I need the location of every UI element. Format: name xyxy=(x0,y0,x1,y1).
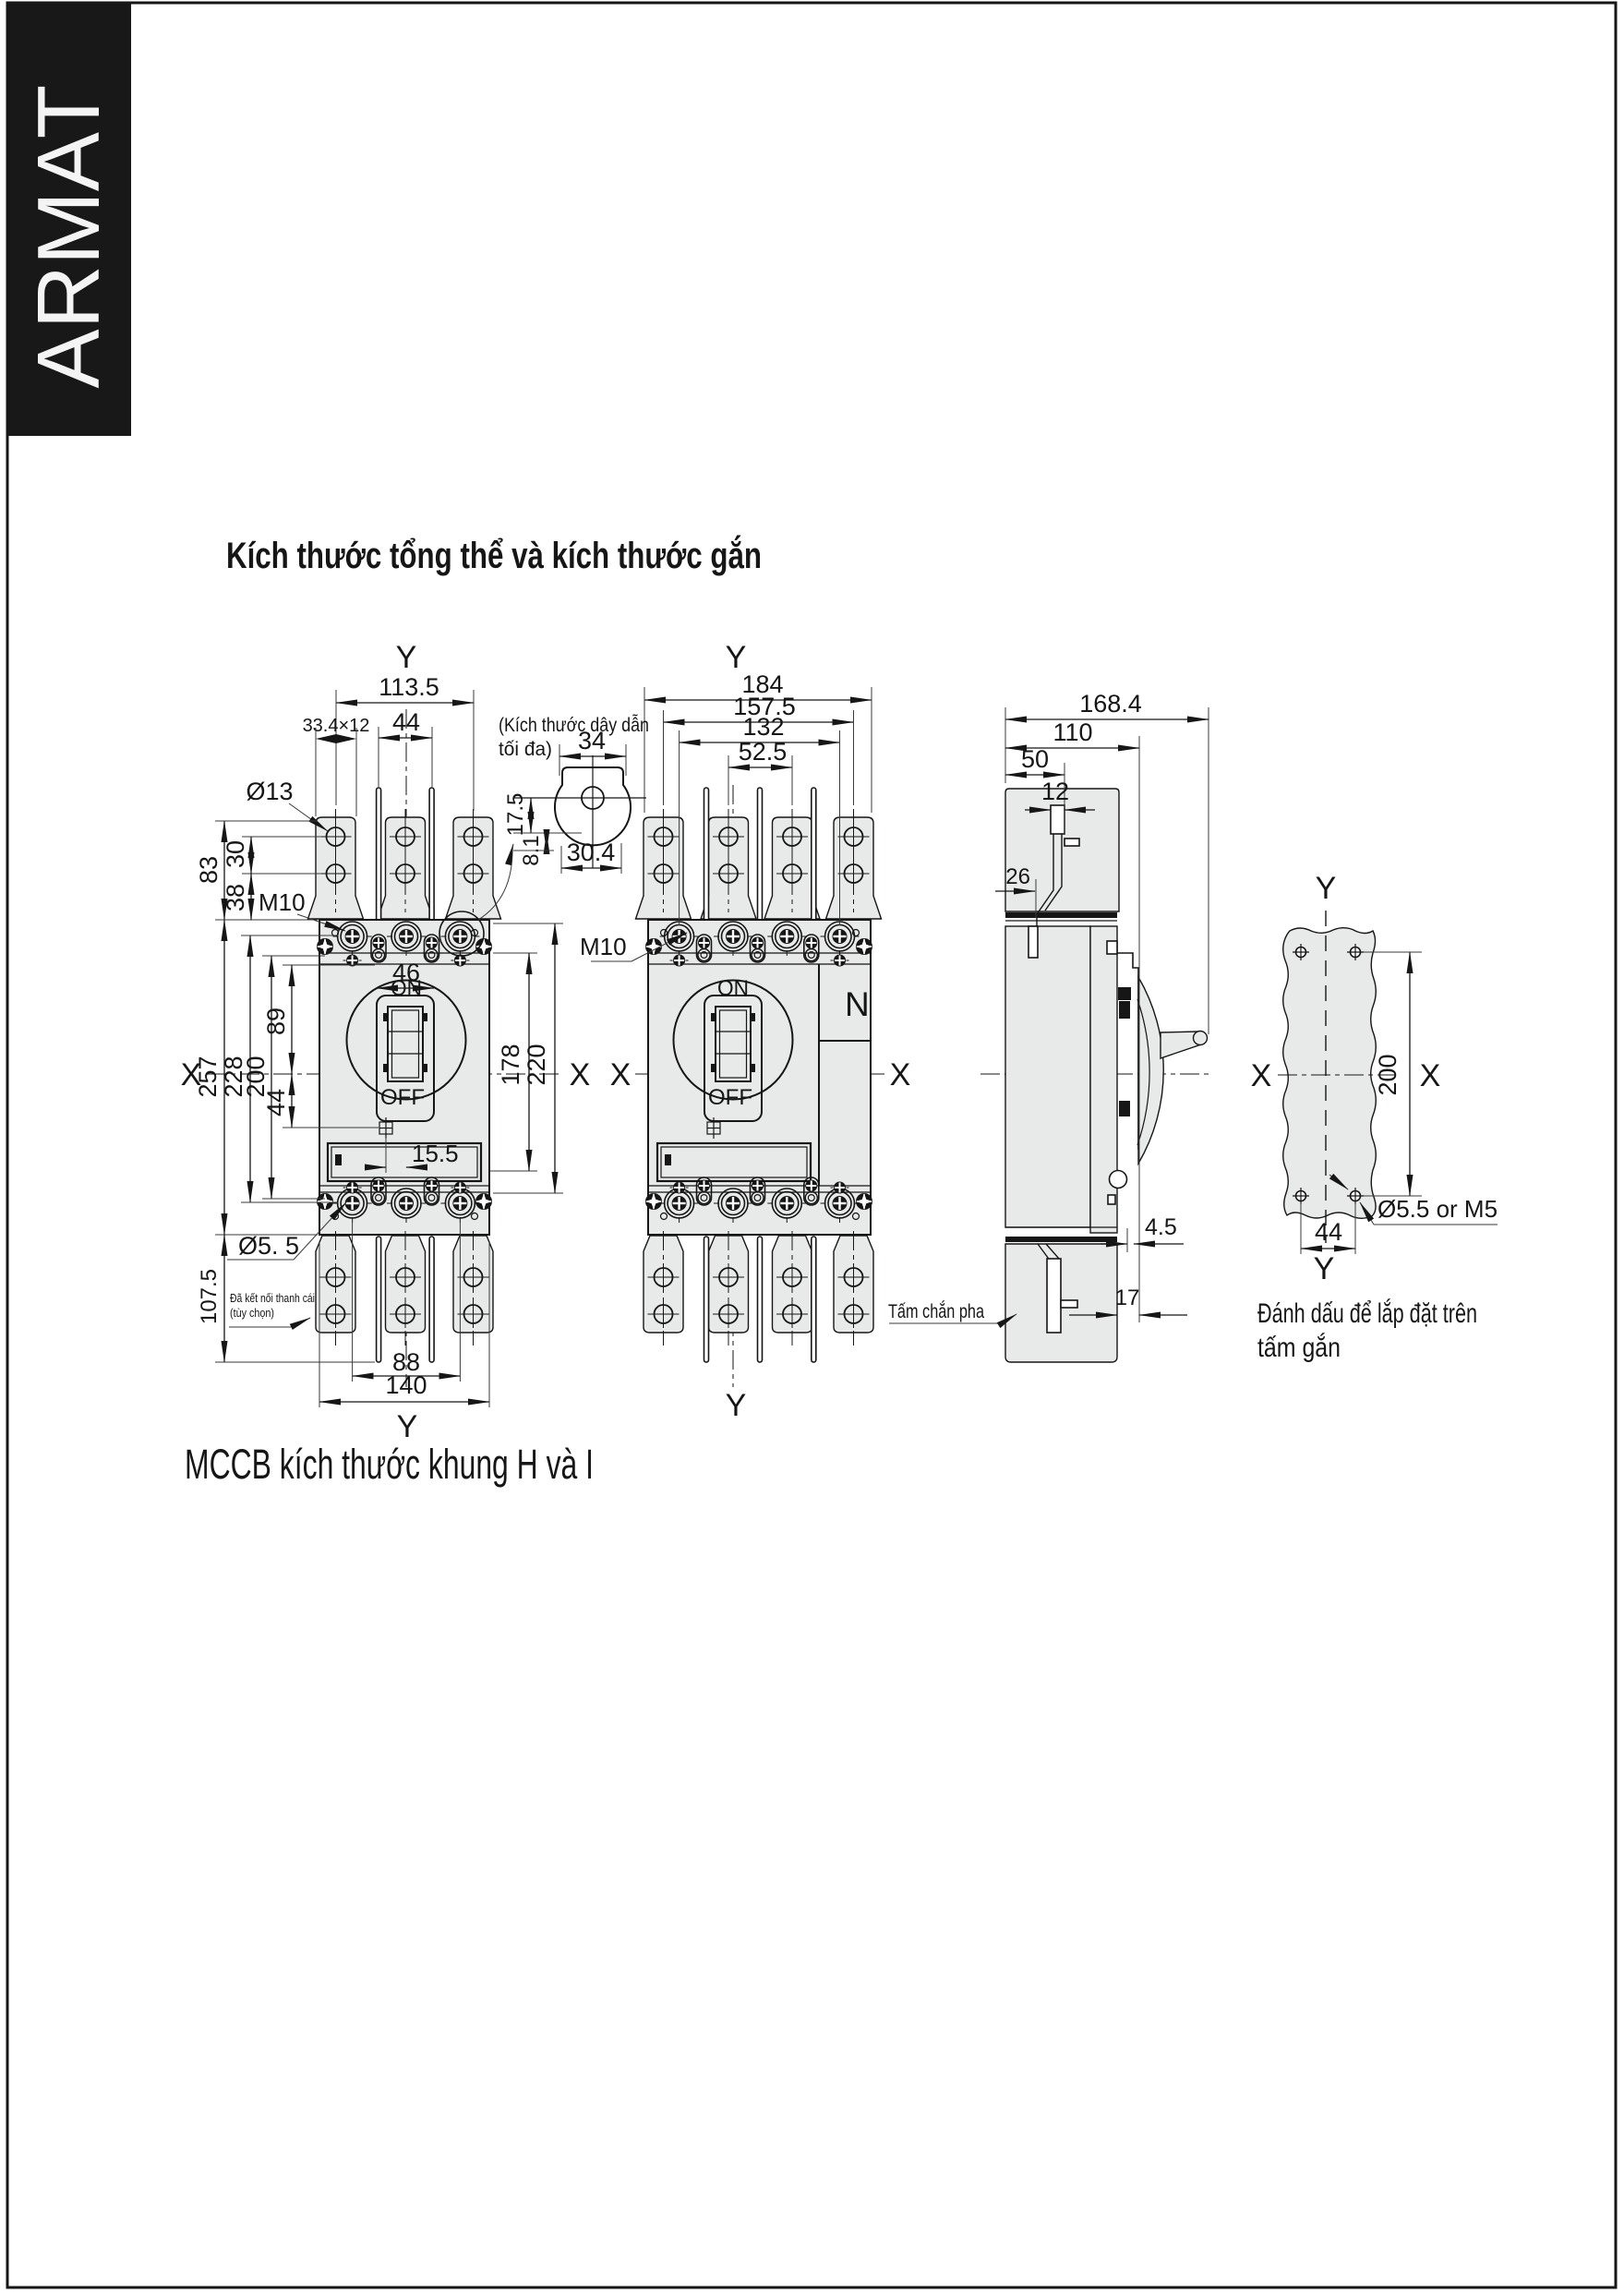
svg-text:52.5: 52.5 xyxy=(739,738,788,766)
svg-text:Ø5.5 or M5: Ø5.5 or M5 xyxy=(1377,1195,1498,1223)
svg-text:50: 50 xyxy=(1021,745,1049,773)
svg-text:X: X xyxy=(1420,1058,1441,1093)
svg-text:(tùy chọn): (tùy chọn) xyxy=(230,1306,274,1320)
svg-text:12: 12 xyxy=(1041,778,1069,805)
svg-text:4.5: 4.5 xyxy=(1145,1214,1177,1240)
svg-text:X: X xyxy=(1251,1058,1272,1093)
svg-text:Đã kết nối thanh cái: Đã kết nối thanh cái xyxy=(230,1291,315,1305)
svg-text:(Kích thước dây dẫn: (Kích thước dây dẫn xyxy=(499,715,649,736)
svg-text:30.4: 30.4 xyxy=(567,839,616,866)
svg-text:33.4×12: 33.4×12 xyxy=(303,716,370,736)
svg-text:M10: M10 xyxy=(259,888,306,916)
svg-text:257: 257 xyxy=(194,1056,222,1097)
svg-text:34: 34 xyxy=(578,727,606,754)
svg-text:17.5: 17.5 xyxy=(503,793,528,837)
svg-text:X: X xyxy=(570,1057,591,1092)
svg-text:Y: Y xyxy=(726,1388,747,1423)
svg-text:83: 83 xyxy=(195,856,223,884)
svg-text:Y: Y xyxy=(397,1409,418,1444)
svg-text:Ø5. 5: Ø5. 5 xyxy=(238,1232,299,1260)
svg-text:44: 44 xyxy=(392,708,420,736)
svg-text:Y: Y xyxy=(396,640,417,675)
svg-text:Y: Y xyxy=(1316,871,1337,906)
svg-text:178: 178 xyxy=(497,1044,524,1085)
svg-text:38: 38 xyxy=(222,884,249,911)
svg-text:26: 26 xyxy=(1005,864,1030,889)
svg-text:168.4: 168.4 xyxy=(1079,690,1142,718)
svg-text:107.5: 107.5 xyxy=(197,1269,222,1324)
svg-text:15.5: 15.5 xyxy=(412,1140,459,1167)
svg-text:89: 89 xyxy=(262,1008,290,1035)
svg-text:44: 44 xyxy=(262,1089,290,1116)
svg-text:tối đa): tối đa) xyxy=(499,739,552,760)
svg-text:132: 132 xyxy=(742,713,784,741)
svg-text:Kích thước tổng thể và kích th: Kích thước tổng thể và kích thước gắn xyxy=(226,534,762,576)
svg-text:tấm gắn: tấm gắn xyxy=(1257,1333,1341,1363)
svg-text:X: X xyxy=(890,1057,911,1092)
svg-text:ARMAT: ARMAT xyxy=(19,85,118,389)
svg-text:110: 110 xyxy=(1053,718,1092,746)
svg-text:MCCB kích thước khung H và I: MCCB kích thước khung H và I xyxy=(185,1441,594,1488)
svg-text:200: 200 xyxy=(1374,1054,1401,1095)
svg-text:113.5: 113.5 xyxy=(379,673,439,701)
svg-text:ON: ON xyxy=(717,976,749,1001)
svg-text:Đánh dấu để lắp đặt trên: Đánh dấu để lắp đặt trên xyxy=(1257,1298,1477,1329)
svg-text:30: 30 xyxy=(222,840,249,868)
svg-text:Y: Y xyxy=(1314,1251,1335,1286)
svg-text:220: 220 xyxy=(523,1044,550,1085)
svg-text:X: X xyxy=(610,1057,632,1092)
svg-text:N: N xyxy=(845,985,870,1023)
svg-text:Tấm chắn pha: Tấm chắn pha xyxy=(888,1301,984,1322)
svg-text:46: 46 xyxy=(392,959,420,986)
svg-text:Ø13: Ø13 xyxy=(246,778,293,805)
svg-text:OFF: OFF xyxy=(708,1085,752,1110)
svg-text:OFF: OFF xyxy=(380,1085,425,1110)
svg-text:17: 17 xyxy=(1115,1285,1140,1310)
svg-text:M10: M10 xyxy=(580,933,627,960)
svg-text:140: 140 xyxy=(385,1371,427,1399)
svg-text:44: 44 xyxy=(1315,1218,1342,1246)
